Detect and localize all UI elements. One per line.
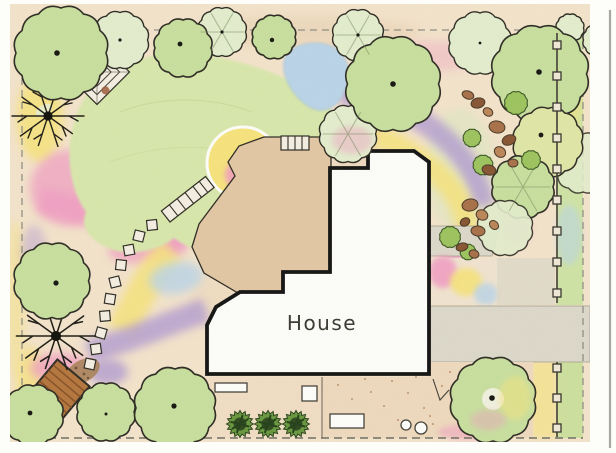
landscape-plan-scan: House bbox=[0, 0, 616, 453]
pencil-texture bbox=[10, 4, 590, 442]
landscape-plan-drawing: House bbox=[0, 0, 616, 453]
